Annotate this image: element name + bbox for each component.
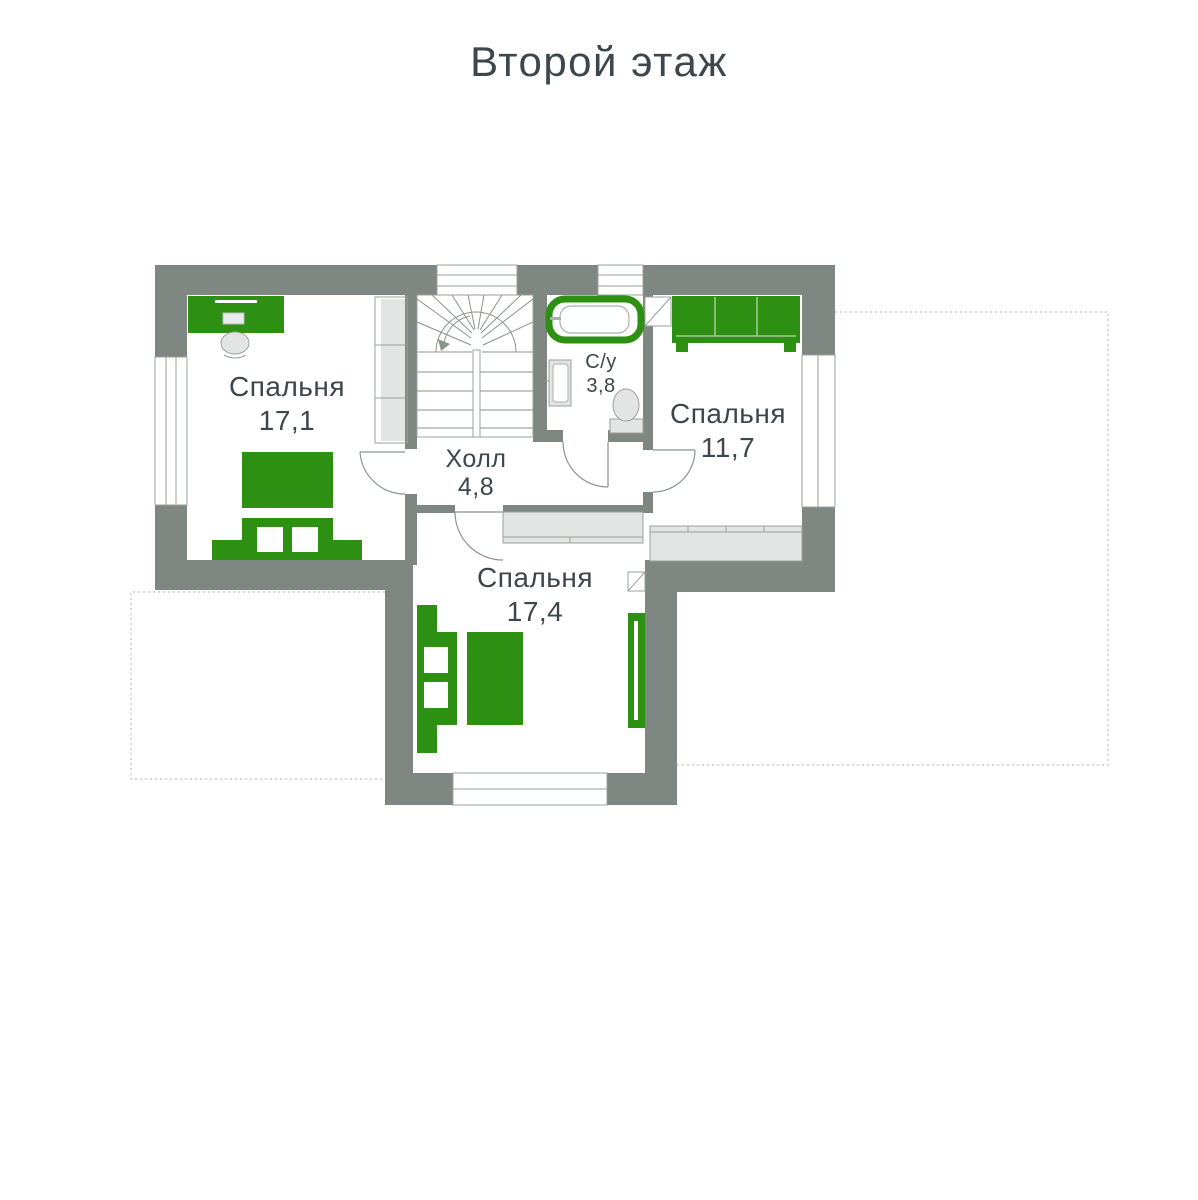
- stair-treads: [417, 295, 533, 428]
- vent-shaft-bathroom: [645, 297, 671, 326]
- bathtub: [549, 299, 641, 340]
- staircase: [417, 295, 533, 437]
- partition-bathroom-left: [533, 295, 547, 442]
- window-left: [155, 357, 187, 505]
- door-bedroom-11-7: [653, 450, 695, 492]
- sink: [545, 360, 571, 406]
- window-top-stairs: [437, 265, 517, 295]
- bed-17-1: [212, 452, 362, 560]
- bed-11-7: [672, 296, 800, 352]
- label-bedroom-17-1-area: 17,1: [259, 405, 316, 436]
- stair-outline: [417, 295, 533, 437]
- wall-extension-right: [645, 560, 677, 805]
- window-top-bathroom: [598, 265, 643, 295]
- label-hall-area: 4,8: [458, 473, 494, 501]
- stair-center-rail: [473, 350, 480, 437]
- floor-plan-page: Второй этаж: [0, 0, 1198, 1200]
- nightstand-right: [333, 540, 362, 560]
- wardrobe-17-4: [503, 512, 643, 543]
- label-bedroom-17-1-name: Спальня: [229, 371, 345, 402]
- wall-extension-left: [385, 590, 413, 805]
- vent-shaft-17-4: [628, 572, 645, 591]
- dashed-outline-bottom-left: [131, 592, 385, 779]
- label-bedroom-17-4-area: 17,4: [507, 596, 564, 627]
- wardrobe-11-7: [650, 526, 802, 561]
- bathtub-faucet: [550, 317, 561, 320]
- bed-17-4: [417, 605, 523, 753]
- label-bedroom-11-7-name: Спальня: [670, 398, 786, 429]
- floor-plan: Спальня 17,1 Спальня 11,7 Спальня 17,4 Х…: [0, 0, 1198, 1200]
- desk: [188, 296, 284, 333]
- window-right: [802, 355, 835, 507]
- label-bedroom-17-4-name: Спальня: [477, 562, 593, 593]
- door-bathroom: [563, 442, 608, 487]
- label-hall-name: Холл: [446, 445, 507, 473]
- partition-bathroom-bottom-a: [533, 430, 563, 442]
- nightstand-left: [212, 540, 242, 560]
- wall-bottom-left-room: [155, 560, 413, 590]
- door-bedroom-17-1: [360, 452, 405, 494]
- mirror-17-4: [628, 613, 645, 728]
- partition-stairs-left-lower: [405, 494, 417, 565]
- chair: [221, 332, 249, 358]
- door-bedroom-17-4: [455, 512, 503, 560]
- bedroom-17-4-furniture: [417, 512, 645, 753]
- label-bathroom-name: С/у: [585, 351, 617, 373]
- label-bathroom-area: 3,8: [586, 375, 615, 397]
- partition-bedroom174-top-a: [413, 505, 455, 513]
- wardrobe-17-1: [375, 297, 407, 443]
- label-bedroom-11-7-area: 11,7: [701, 432, 755, 463]
- window-bottom: [453, 773, 607, 805]
